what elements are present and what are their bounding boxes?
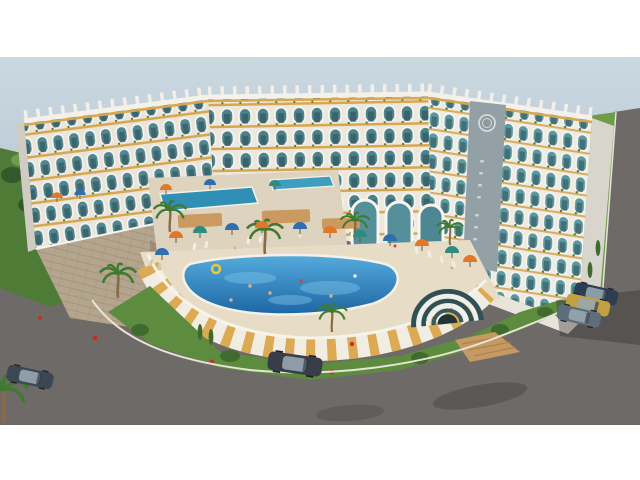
resort-rendering xyxy=(0,0,640,480)
clock-emblem-icon xyxy=(479,115,495,131)
letterbox-bottom xyxy=(0,425,640,480)
letterbox-top xyxy=(0,0,640,57)
rendering-frame xyxy=(0,0,640,480)
